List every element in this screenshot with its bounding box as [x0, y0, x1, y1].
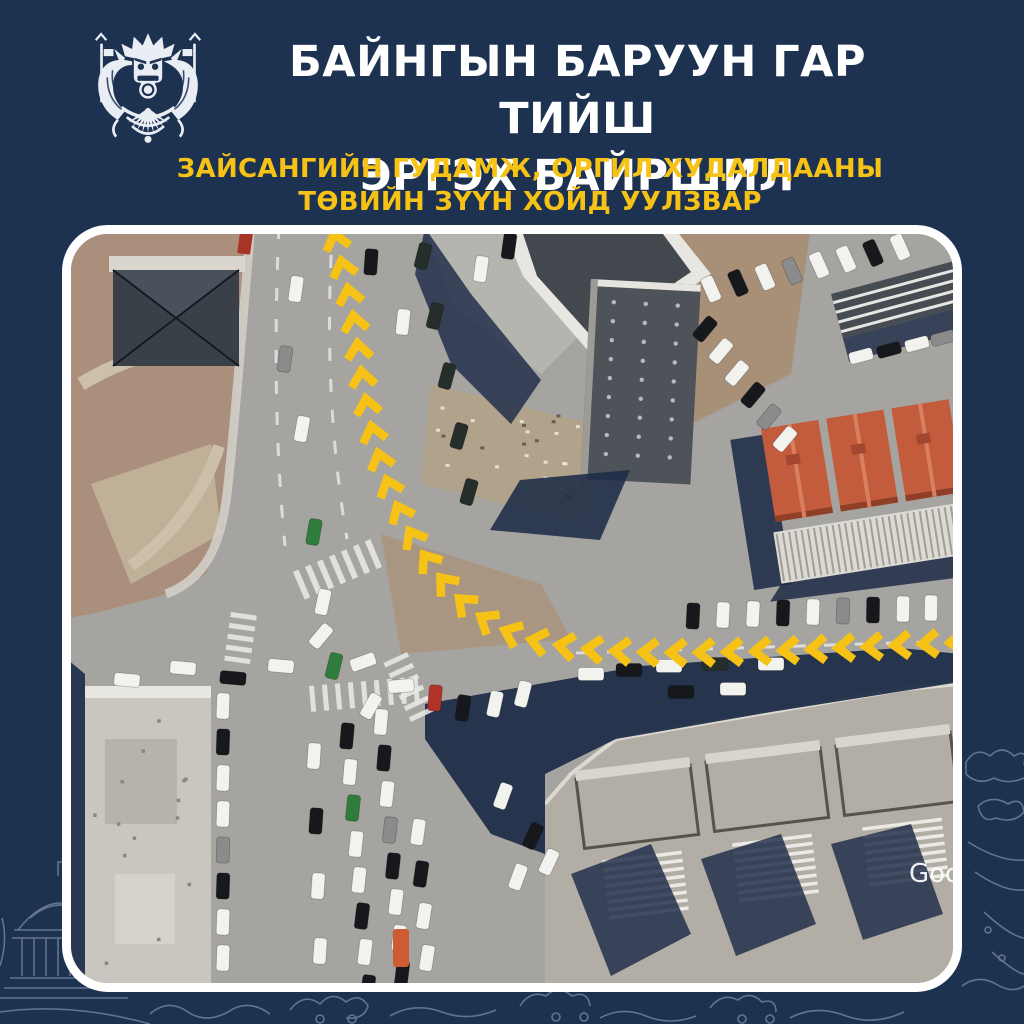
- bottom-left-building: [71, 654, 211, 983]
- aerial-scene: Google: [71, 234, 953, 983]
- google-watermark: Google: [909, 859, 953, 889]
- location-subtitle-line-2: ТӨВИЙН ЗҮҮН ХОЙД УУЛЗВАР: [145, 186, 915, 219]
- poster-background: { "header": { "logo": "traffic-police-em…: [0, 0, 1024, 1024]
- dark-highrise: [581, 279, 701, 484]
- satellite-map: Google: [62, 225, 962, 992]
- location-subtitle: ЗАЙСАНГИЙН ГУДАМЖ, ОРГИЛ ХУДАЛДААНЫ ТӨВИ…: [145, 153, 915, 219]
- location-subtitle-line-1: ЗАЙСАНГИЙН ГУДАМЖ, ОРГИЛ ХУДАЛДААНЫ: [145, 153, 915, 186]
- page-title-line-1: БАЙНГЫН БАРУУН ГАР ТИЙШ: [205, 34, 950, 148]
- orange-bus: [393, 929, 409, 967]
- traffic-police-emblem-logo: [86, 24, 210, 152]
